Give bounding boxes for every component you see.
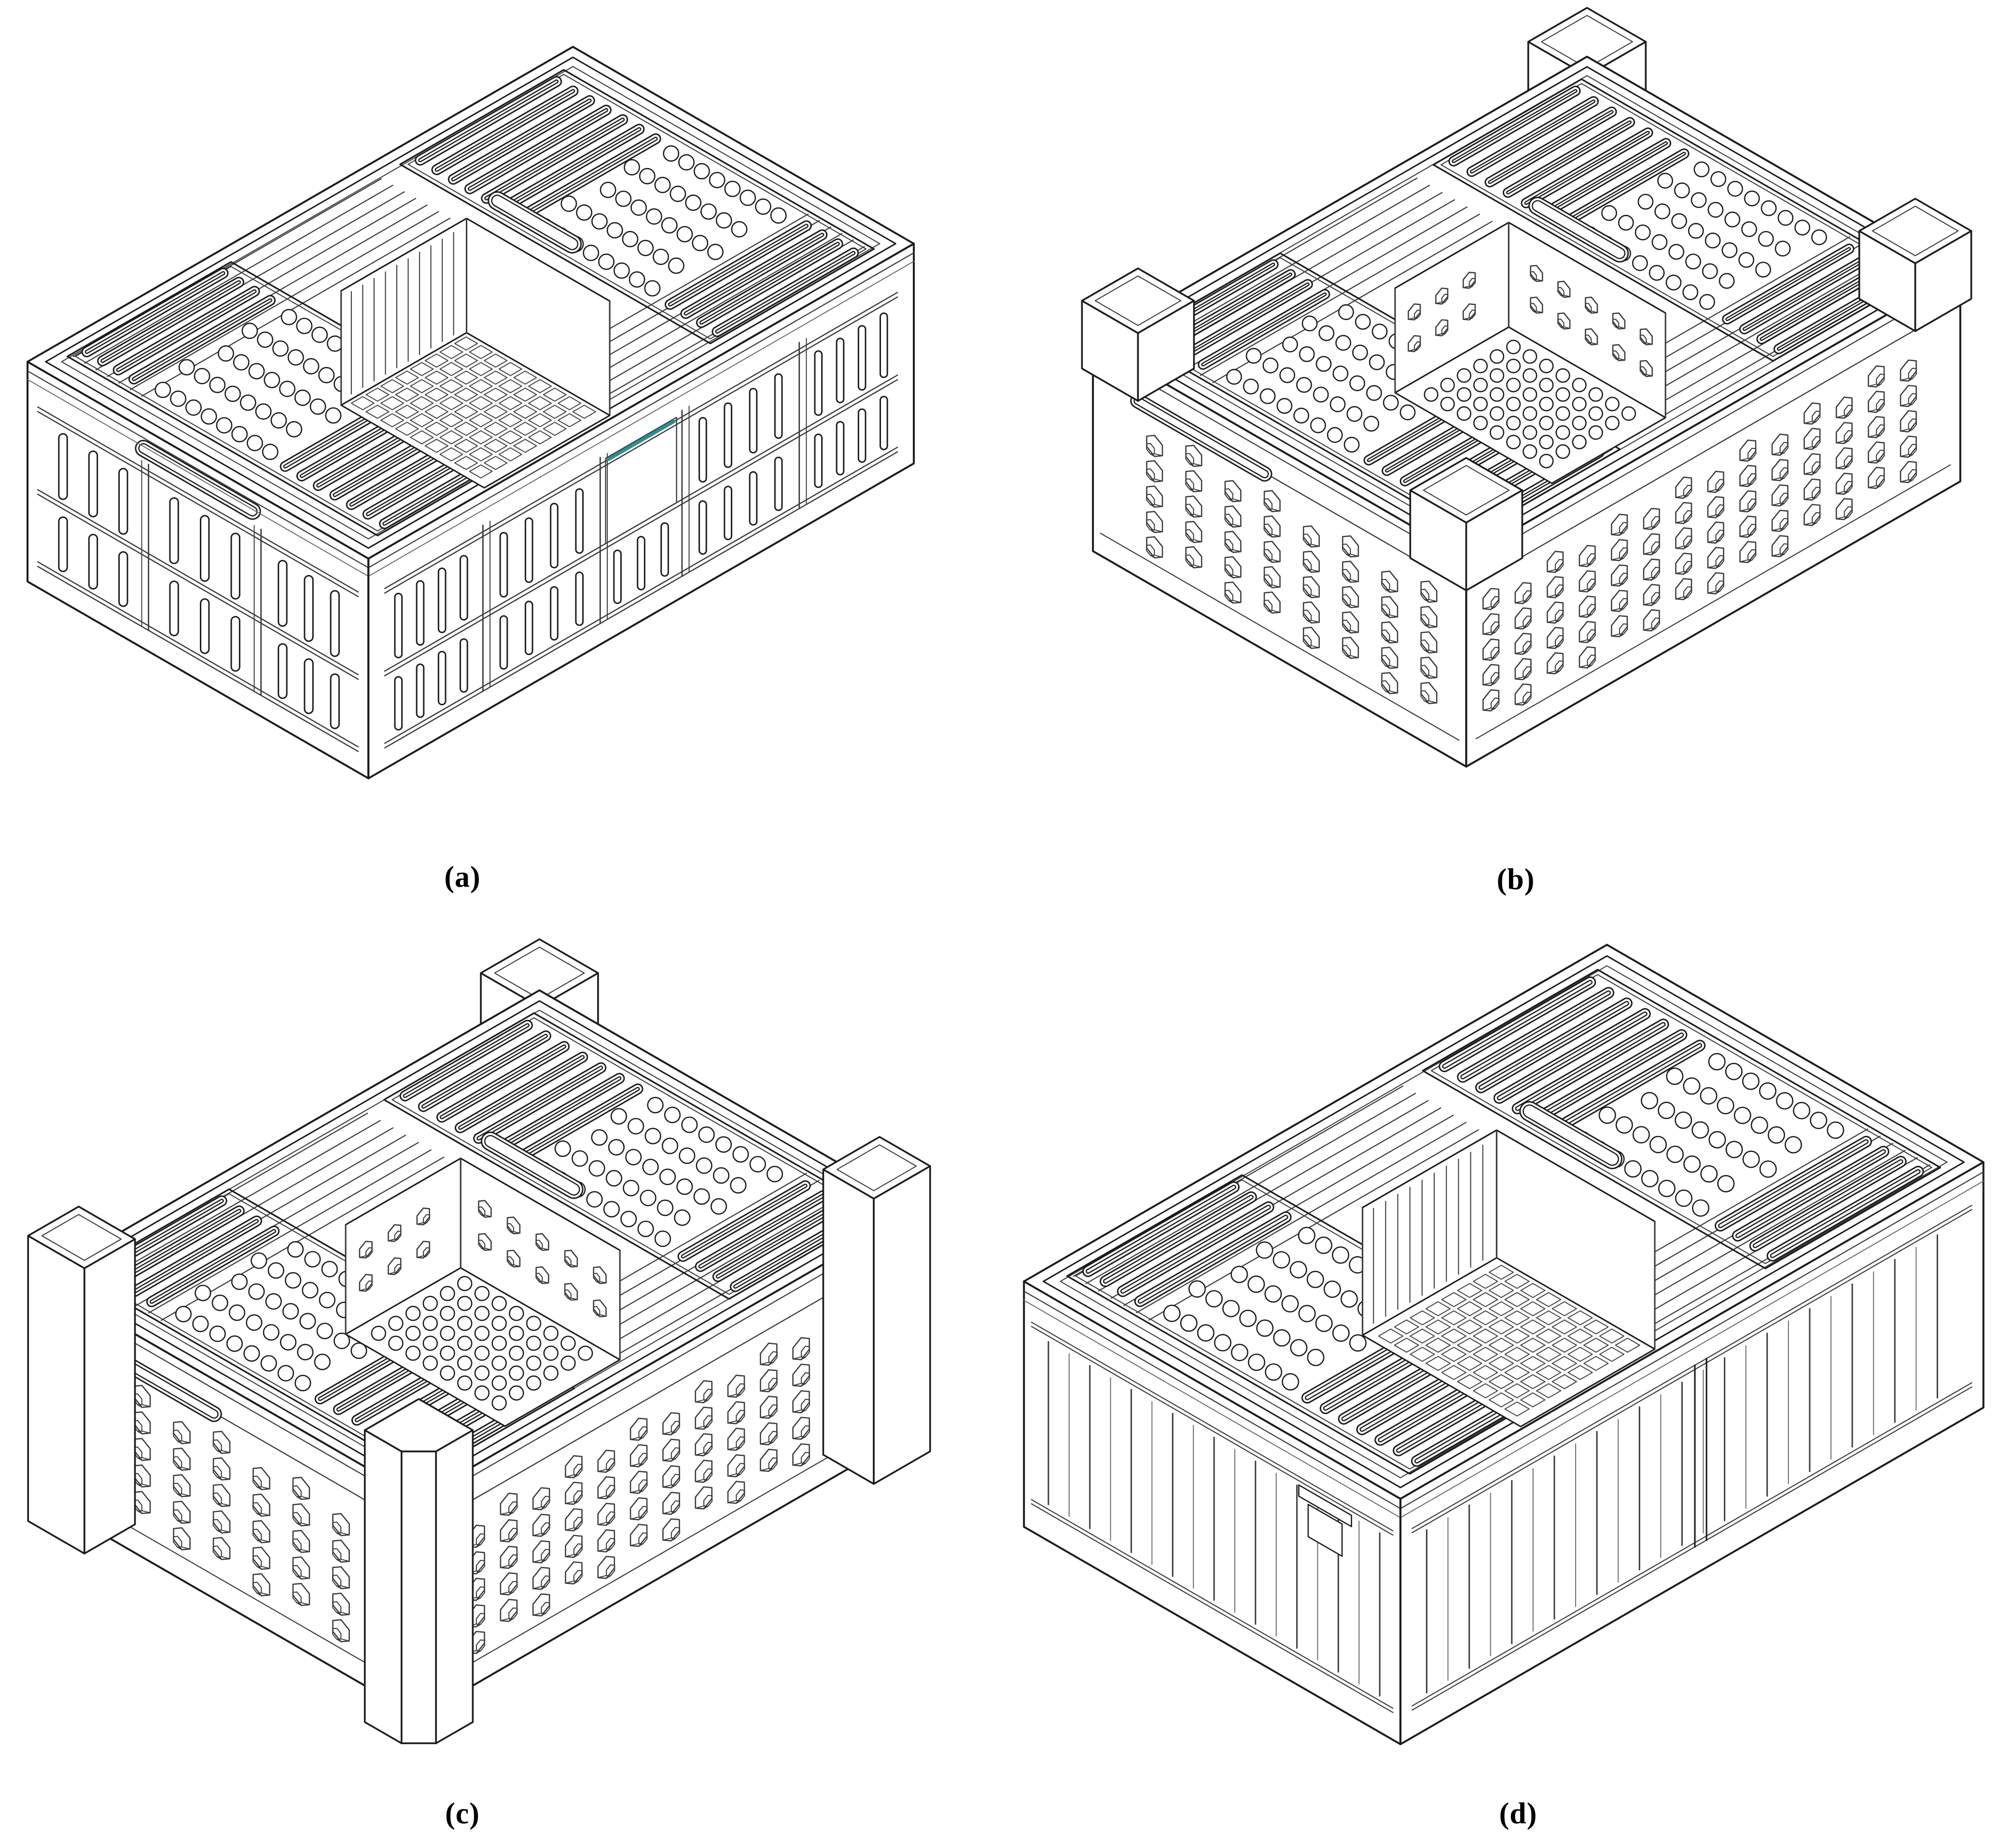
crate-b-drawing bbox=[1060, 5, 1994, 777]
figure-a-caption: (a) bbox=[361, 860, 564, 895]
figure-b-caption: (b) bbox=[1414, 863, 1617, 897]
crate-c-drawing bbox=[5, 937, 953, 1757]
figure-c-caption: (c) bbox=[361, 1797, 564, 1831]
crate-d-drawing bbox=[1011, 934, 1996, 1755]
crate-a-drawing bbox=[17, 36, 924, 792]
figure-d-caption: (d) bbox=[1417, 1797, 1620, 1831]
